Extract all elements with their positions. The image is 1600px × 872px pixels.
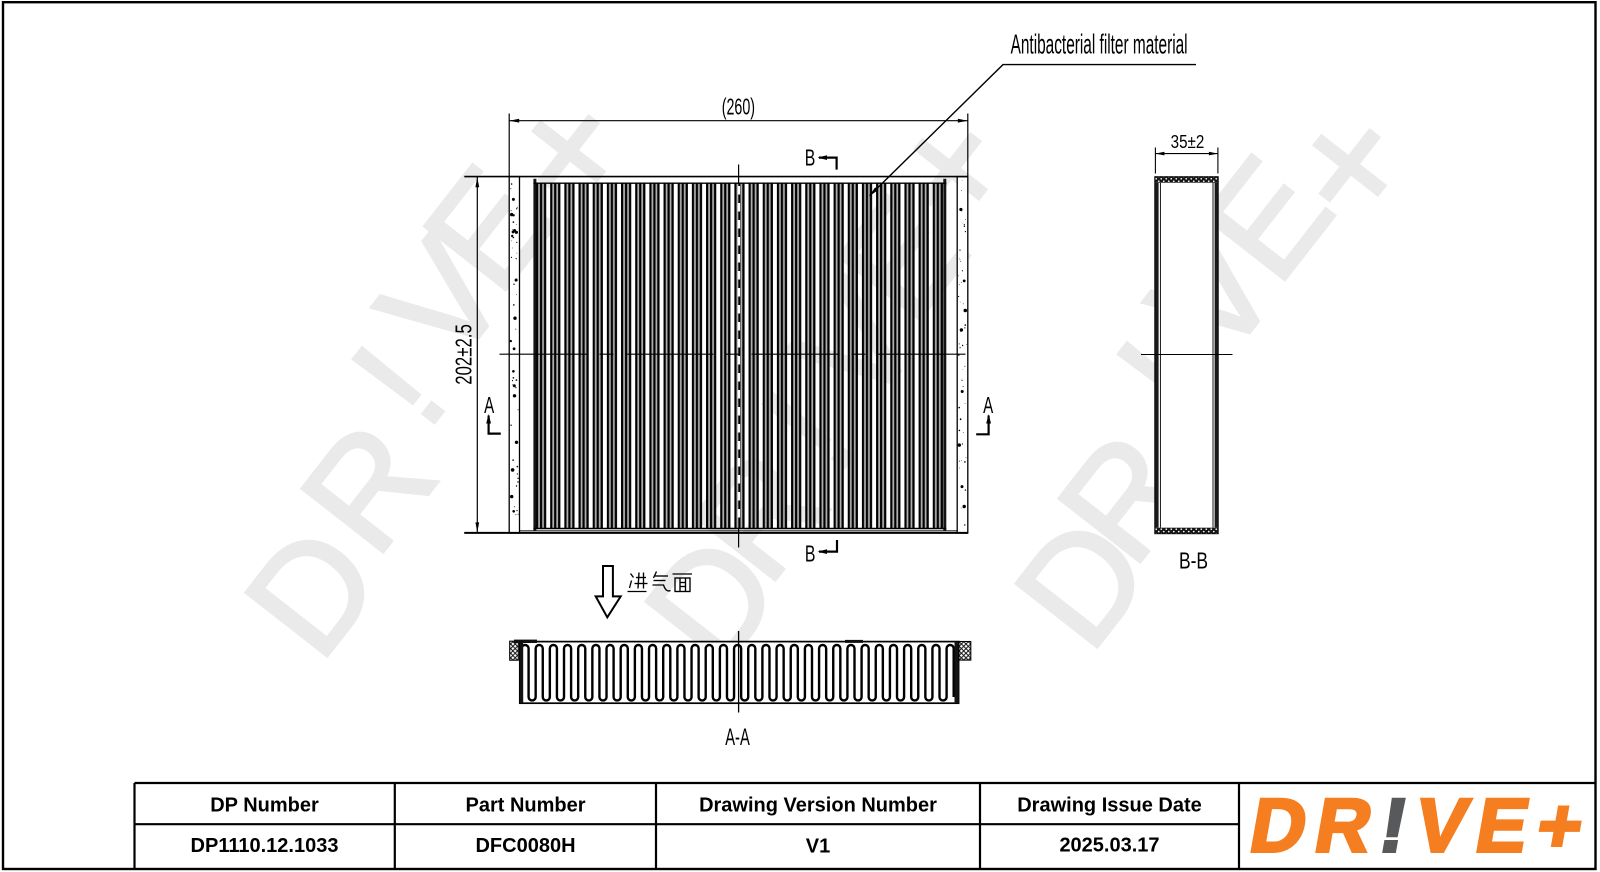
- svg-text:Antibacterial filter material: Antibacterial filter material: [1011, 29, 1188, 60]
- svg-text:DFC0080H: DFC0080H: [475, 835, 575, 857]
- svg-text:202±2.5: 202±2.5: [452, 324, 477, 385]
- svg-text:DR!VE+: DR!VE+: [1244, 784, 1600, 868]
- svg-text:2025.03.17: 2025.03.17: [1059, 835, 1159, 857]
- svg-text:V1: V1: [806, 836, 830, 858]
- svg-text:(260): (260): [722, 95, 755, 120]
- svg-text:B: B: [805, 542, 816, 568]
- svg-text:B-B: B-B: [1179, 548, 1208, 574]
- svg-text:Drawing Version Number: Drawing Version Number: [699, 795, 937, 817]
- svg-text:DP1110.12.1033: DP1110.12.1033: [191, 835, 339, 857]
- svg-text:A: A: [983, 393, 994, 419]
- svg-text:A: A: [484, 393, 495, 419]
- svg-text:Part Number: Part Number: [465, 795, 585, 817]
- svg-text:Drawing Issue Date: Drawing Issue Date: [1017, 795, 1202, 817]
- svg-text:A-A: A-A: [725, 724, 750, 751]
- svg-text:B: B: [805, 146, 816, 172]
- svg-text:DP Number: DP Number: [210, 795, 319, 817]
- svg-text:35±2: 35±2: [1171, 132, 1205, 153]
